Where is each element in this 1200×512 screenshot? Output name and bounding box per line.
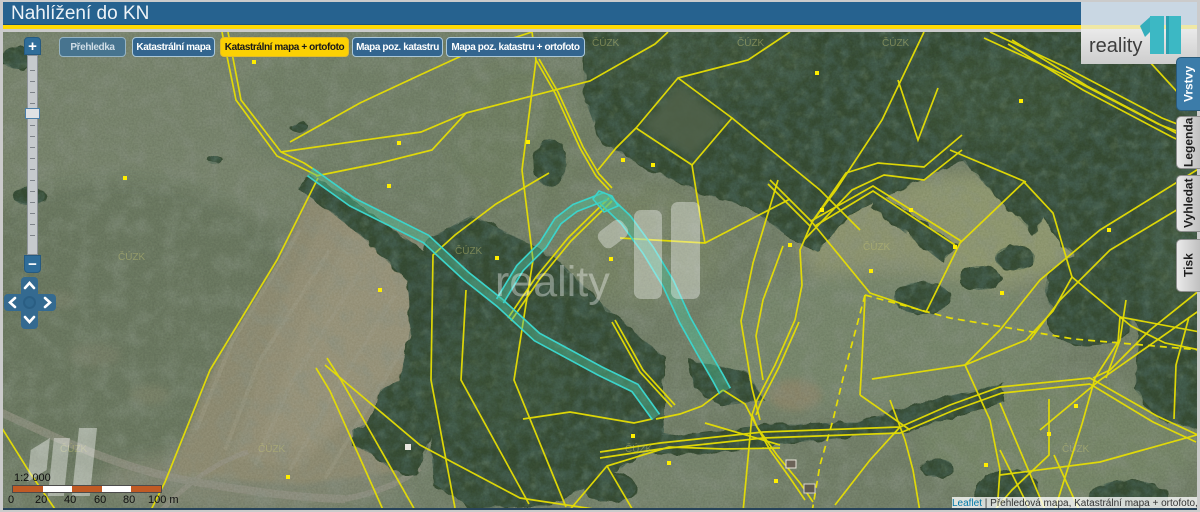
svg-text:ČÚZK: ČÚZK	[592, 36, 620, 49]
svg-text:reality: reality	[495, 258, 610, 306]
svg-text:ČÚZK: ČÚZK	[863, 240, 891, 253]
svg-text:ČÚZK: ČÚZK	[258, 442, 286, 455]
svg-text:ČÚZK: ČÚZK	[625, 442, 653, 455]
svg-text:ČÚZK: ČÚZK	[118, 250, 146, 263]
svg-text:ČÚZK: ČÚZK	[737, 36, 765, 49]
svg-text:ČÚZK: ČÚZK	[1062, 442, 1090, 455]
svg-text:ČÚZK: ČÚZK	[455, 244, 483, 257]
svg-text:ČÚZK: ČÚZK	[882, 36, 910, 49]
